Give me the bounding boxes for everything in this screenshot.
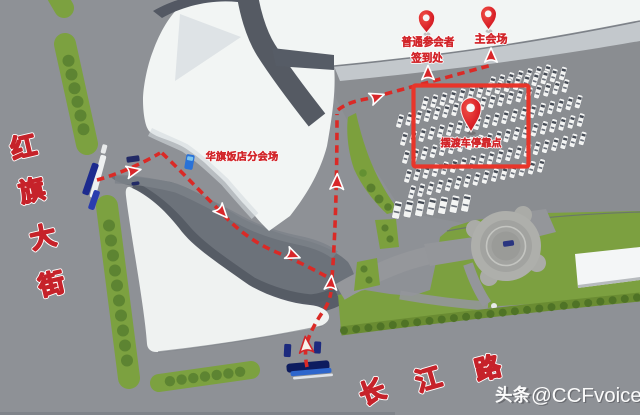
svg-text:摆渡车停靠点: 摆渡车停靠点 (440, 137, 501, 150)
svg-text:头条: 头条 (495, 385, 530, 405)
svg-text:主会场: 主会场 (475, 32, 508, 46)
svg-text:@CCFvoice: @CCFvoice (531, 384, 640, 407)
svg-text:华旗饭店分会场: 华旗饭店分会场 (206, 150, 279, 163)
svg-text:签到处: 签到处 (410, 52, 443, 65)
svg-text:普通参会者: 普通参会者 (402, 36, 455, 49)
